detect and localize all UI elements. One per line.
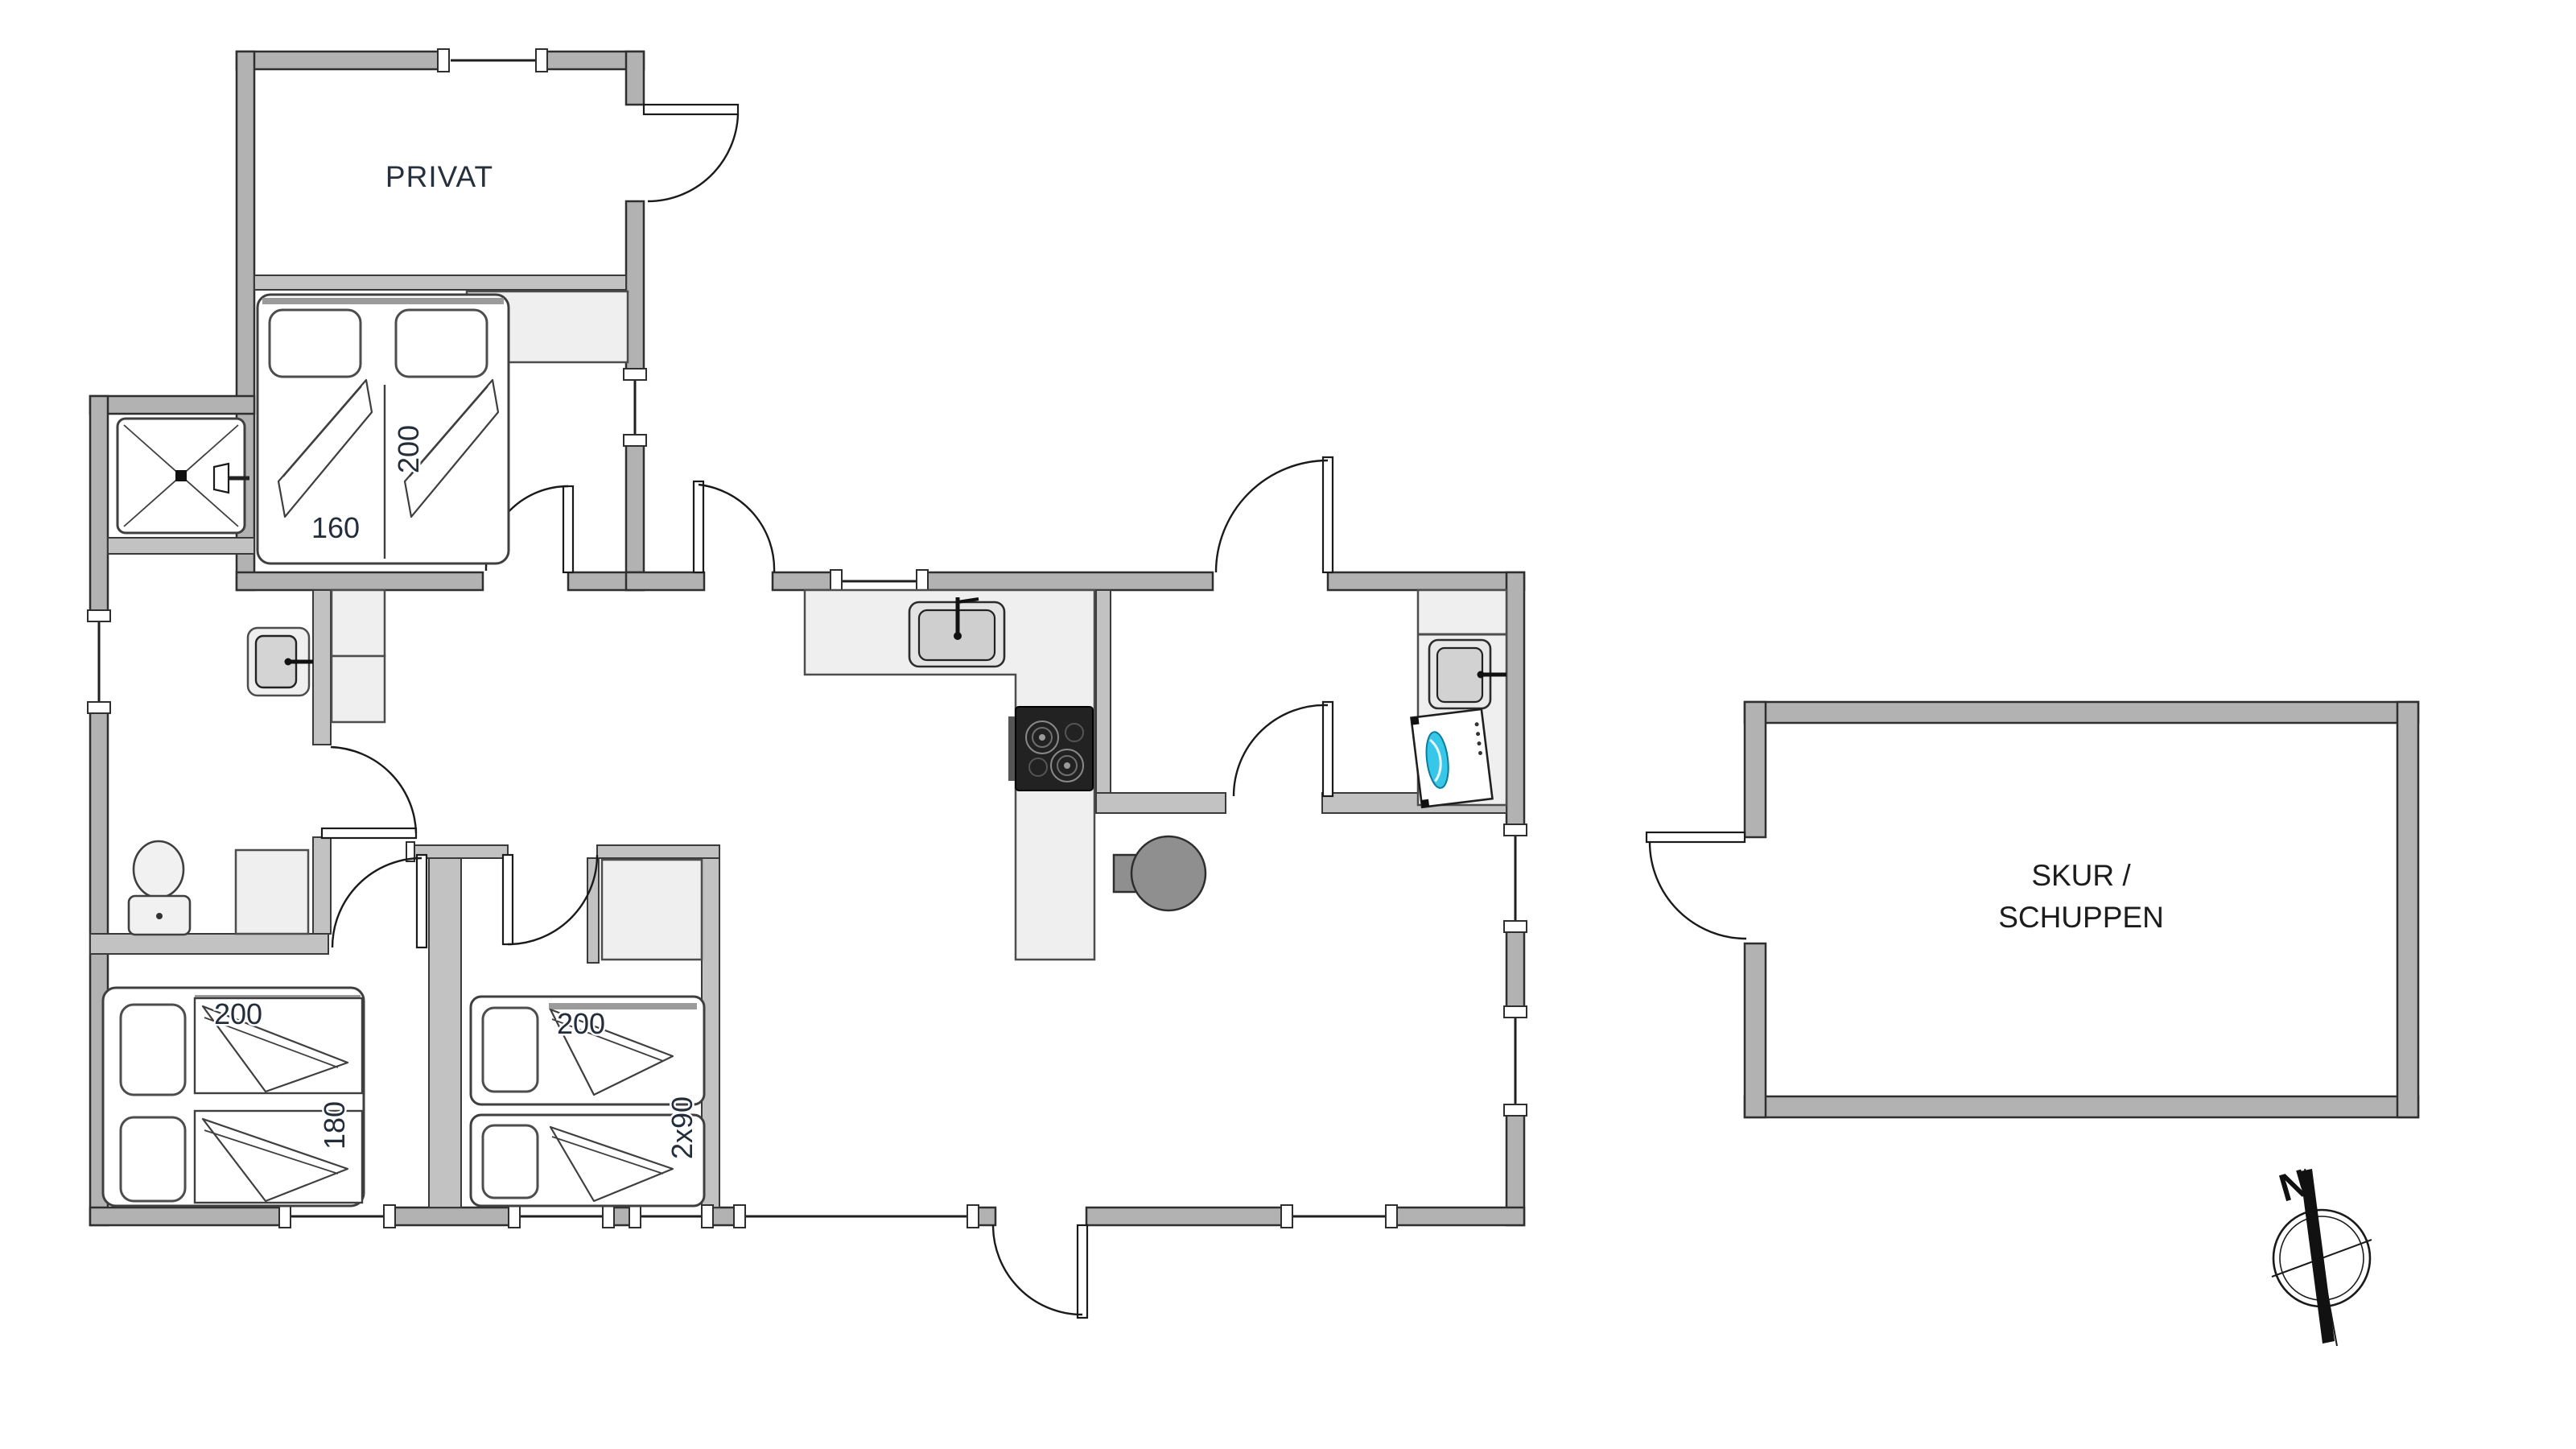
door-leaf [694, 481, 703, 572]
wall [773, 572, 837, 590]
wall-partition [313, 837, 331, 934]
window-icon [629, 1205, 713, 1228]
wall [923, 572, 1213, 590]
wall [1745, 702, 1766, 837]
door-swing-icon [699, 485, 774, 572]
shed-label-line2: SCHUPPEN [1998, 901, 2164, 934]
pillow-icon [121, 1117, 185, 1201]
wall [90, 396, 254, 414]
pillow-icon [270, 310, 361, 377]
door-leaf [563, 486, 573, 572]
wall [90, 1207, 286, 1225]
window-icon [279, 1205, 395, 1228]
wall [1745, 943, 1766, 1117]
door-leaf [503, 855, 513, 944]
window-icon [734, 1205, 979, 1228]
wardrobe-icon [332, 590, 385, 656]
wardrobe-icon [602, 860, 702, 960]
window-icon [1504, 824, 1527, 932]
door-bathroom1 [322, 747, 416, 838]
door-swing-icon [1650, 842, 1746, 939]
wall-partition [429, 845, 461, 1207]
faucet-tip [285, 658, 292, 666]
door-swing-icon [331, 747, 416, 833]
bathroom-2 [1411, 590, 1506, 807]
bed1-width-label: 160 [311, 511, 360, 544]
wall [237, 52, 444, 69]
wall-partition [587, 858, 599, 963]
door-leaf [1647, 832, 1745, 842]
bed2-width-label: 180 [318, 1101, 351, 1150]
wall-partition [108, 538, 254, 554]
door-swing-icon [508, 855, 597, 944]
cabinet-icon [236, 850, 308, 934]
pillow-icon [121, 1005, 185, 1095]
window-icon [1504, 1006, 1527, 1116]
wall-partition [1096, 590, 1111, 803]
door-leaf [1323, 457, 1333, 572]
door-leaf [644, 105, 738, 114]
door-leaf [417, 855, 427, 947]
bed3-width-label: 2x90 [666, 1096, 699, 1159]
door-back-east [1216, 457, 1333, 572]
washing-machine-icon [1411, 709, 1492, 807]
door-swing-icon [1234, 705, 1328, 796]
pillow-icon [396, 310, 487, 377]
wall-partition [597, 845, 719, 858]
kitchen [805, 590, 1206, 960]
wall [1745, 1096, 2418, 1117]
door-leaf [1323, 702, 1333, 796]
window-icon [624, 369, 646, 446]
door-leaf [322, 828, 416, 838]
shower-drain [175, 470, 187, 481]
room-label-privat: PRIVAT [385, 160, 493, 193]
door-bedroom2 [332, 855, 427, 947]
door-swing-icon [648, 114, 738, 201]
wood-stove-icon [1114, 836, 1206, 910]
wall [1506, 572, 1524, 831]
faucet-tip [954, 632, 962, 640]
wardrobe-icon [332, 656, 385, 722]
shower-handle [214, 464, 229, 493]
kitchen-sink-icon [909, 597, 1004, 667]
compass-icon: N [2272, 1162, 2372, 1346]
wall [626, 572, 704, 590]
door-back-west [694, 481, 774, 572]
window-icon [88, 610, 110, 713]
shower-icon [117, 419, 249, 533]
wall-partition [90, 934, 328, 954]
washbasin-icon [248, 628, 313, 696]
wall-partition [313, 590, 331, 745]
pillow-icon [483, 1008, 538, 1092]
shed-label-line1: SKUR / [2031, 859, 2131, 892]
hallway [332, 590, 385, 722]
bed2-length-label: 200 [214, 997, 262, 1030]
door-bedroom3 [503, 855, 597, 944]
wall [626, 52, 644, 105]
floor-plan-canvas: PRIVAT 200 160 200 180 200 2x90 SKUR / S… [0, 0, 2576, 1449]
bed3-length-label: 200 [557, 1007, 605, 1040]
door-bathroom2 [1234, 702, 1333, 796]
window-icon [509, 1205, 614, 1228]
door-swing-icon [1216, 460, 1328, 572]
wall [390, 1207, 515, 1225]
wall [1328, 572, 1524, 590]
wall-partition [1096, 793, 1226, 813]
wall-partition [254, 275, 626, 290]
flush-button [156, 913, 163, 919]
door-privat-exterior [644, 105, 738, 201]
cooktop-icon [1008, 707, 1093, 791]
window-icon [438, 49, 547, 72]
door-leaf [1078, 1225, 1087, 1318]
wall [2397, 702, 2418, 1117]
toilet-icon [129, 841, 190, 935]
wall [1392, 1207, 1524, 1225]
door-shed [1647, 832, 1746, 939]
window-icon [1281, 1205, 1397, 1228]
faucet-tip [1478, 671, 1485, 679]
compass-north-label: N [2274, 1162, 2313, 1211]
wall [626, 441, 644, 590]
door-swing-icon [993, 1225, 1082, 1315]
wall [237, 572, 483, 590]
wall [1506, 927, 1524, 1013]
wall [626, 201, 644, 374]
bed1-length-label: 200 [392, 425, 425, 473]
wall [90, 396, 108, 616]
wall [1086, 1207, 1288, 1225]
pillow-icon [483, 1125, 538, 1198]
door-swing-icon [332, 858, 422, 947]
wall [1745, 702, 2418, 723]
door-entrance [993, 1225, 1087, 1318]
